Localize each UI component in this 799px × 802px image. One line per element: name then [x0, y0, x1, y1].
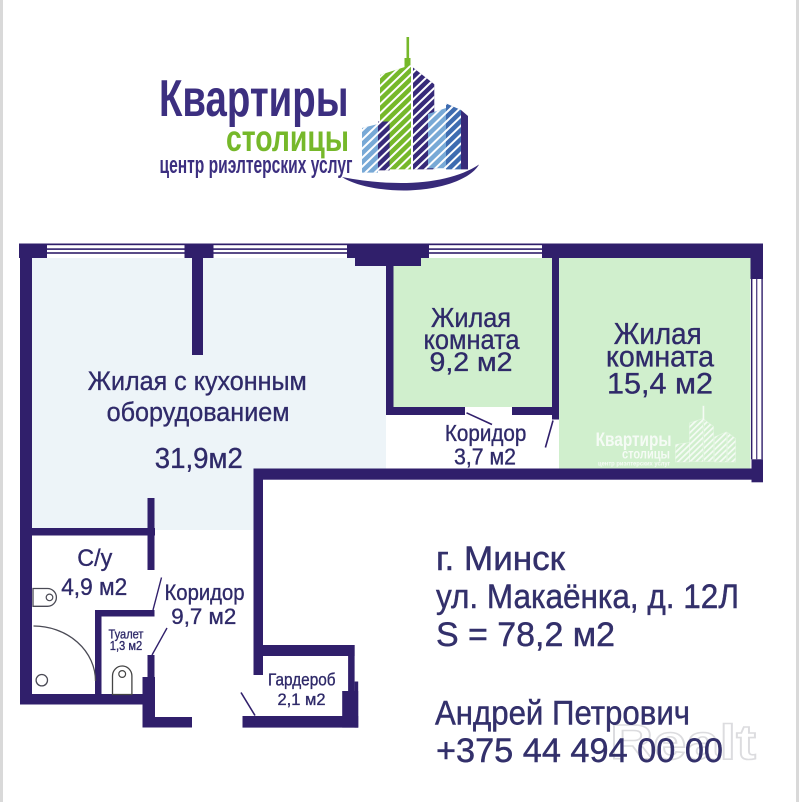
svg-text:оборудованием: оборудованием: [107, 397, 290, 427]
svg-text:Жилая с кухонным: Жилая с кухонным: [88, 366, 307, 396]
svg-text:9,2 м2: 9,2 м2: [430, 347, 513, 377]
svg-text:4,9 м2: 4,9 м2: [61, 574, 127, 601]
svg-text:ул. Макаёнка, д. 12Л: ул. Макаёнка, д. 12Л: [436, 578, 739, 616]
svg-text:Гардероб: Гардероб: [268, 670, 336, 690]
svg-text:3,7 м2: 3,7 м2: [454, 444, 516, 470]
svg-text:2,1 м2: 2,1 м2: [278, 690, 326, 709]
svg-text:S = 78,2 м2: S = 78,2 м2: [436, 616, 615, 654]
svg-text:столицы: столицы: [622, 447, 670, 462]
svg-text:г. Минск: г. Минск: [436, 540, 566, 578]
svg-text:9,7 м2: 9,7 м2: [171, 604, 236, 629]
svg-text:15,4 м2: 15,4 м2: [607, 368, 713, 401]
svg-text:Коридор: Коридор: [165, 580, 245, 605]
svg-text:Коридор: Коридор: [445, 420, 527, 446]
svg-text:31,9м2: 31,9м2: [155, 443, 243, 475]
svg-text:Андрей Петрович: Андрей Петрович: [435, 695, 690, 733]
svg-text:С/у: С/у: [77, 545, 112, 572]
svg-text:центр риэлтерских услуг: центр риэлтерских услуг: [160, 152, 353, 179]
svg-text:+375 44 494 00 00: +375 44 494 00 00: [436, 732, 723, 770]
svg-text:центр риэлтерских услуг: центр риэлтерских услуг: [598, 461, 670, 468]
svg-text:1,3 м2: 1,3 м2: [110, 638, 143, 653]
